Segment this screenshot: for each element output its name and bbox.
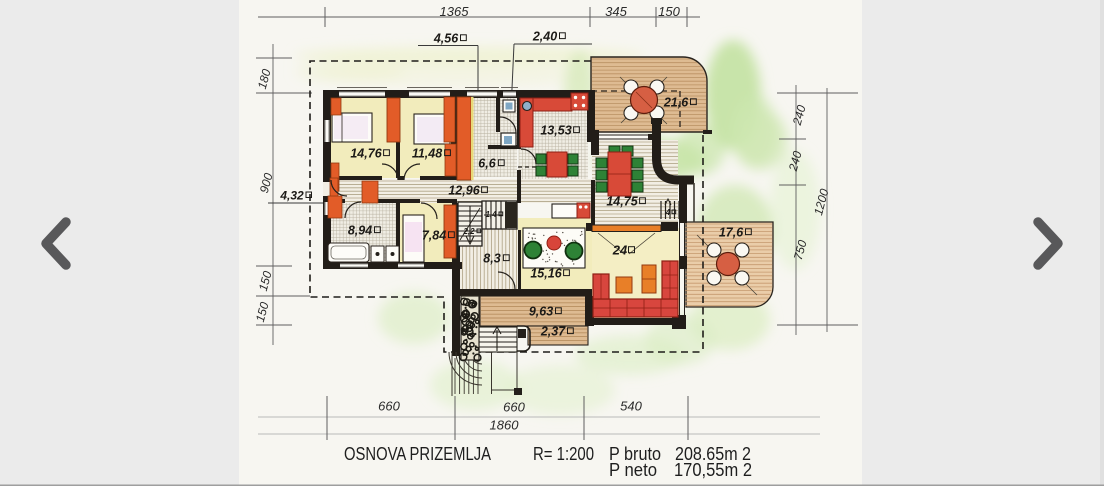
svg-text:1860: 1860 xyxy=(490,418,520,433)
svg-text:8,3: 8,3 xyxy=(483,252,500,266)
svg-text:150: 150 xyxy=(658,4,680,19)
svg-text:2,40: 2,40 xyxy=(532,30,557,44)
svg-text:15,16: 15,16 xyxy=(530,267,562,281)
svg-text:7,84: 7,84 xyxy=(422,229,446,243)
svg-text:1,4: 1,4 xyxy=(485,210,497,219)
svg-text:660: 660 xyxy=(378,399,400,414)
svg-text:P neto: P neto xyxy=(609,460,657,480)
svg-text:2,37: 2,37 xyxy=(540,325,566,339)
svg-text:12,96: 12,96 xyxy=(448,184,480,198)
svg-text:660: 660 xyxy=(503,400,525,415)
svg-text:21,6: 21,6 xyxy=(663,96,689,110)
svg-text:4,56: 4,56 xyxy=(433,32,459,46)
svg-text:14,76: 14,76 xyxy=(350,147,382,161)
svg-text:540: 540 xyxy=(620,399,642,414)
svg-text:170,55m 2: 170,55m 2 xyxy=(674,460,752,480)
svg-text:345: 345 xyxy=(605,4,627,19)
svg-text:OSNOVA PRIZEMLJA: OSNOVA PRIZEMLJA xyxy=(344,444,491,464)
svg-text:14,75: 14,75 xyxy=(606,195,638,209)
svg-text:11,48: 11,48 xyxy=(412,147,442,161)
svg-text:R= 1:200: R= 1:200 xyxy=(533,444,594,464)
svg-text:8,94: 8,94 xyxy=(348,224,372,238)
svg-text:24: 24 xyxy=(612,243,628,258)
svg-text:9,63: 9,63 xyxy=(529,305,553,319)
svg-text:1365: 1365 xyxy=(440,4,470,19)
svg-text:17,6: 17,6 xyxy=(719,226,744,240)
svg-text:13,53: 13,53 xyxy=(540,124,571,138)
svg-text:4,32: 4,32 xyxy=(279,188,304,202)
svg-text:6,6: 6,6 xyxy=(478,157,496,171)
svg-text:4: 4 xyxy=(665,208,671,217)
svg-text:2,2: 2,2 xyxy=(462,227,475,236)
